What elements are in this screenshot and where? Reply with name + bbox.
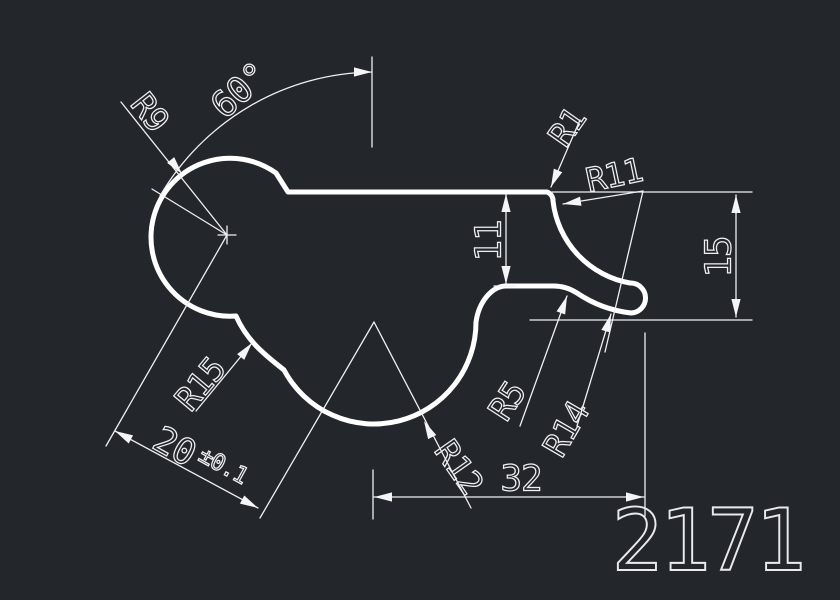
r5-arrowhead (557, 294, 572, 314)
r1-label: R1 (540, 100, 594, 153)
dim-20-arrowhead-right (240, 495, 260, 512)
dim-20-extension-left (106, 235, 227, 446)
dim-60-arrowhead (354, 67, 372, 76)
dim-15-arrowhead-bottom (731, 299, 740, 317)
dim-angle-60: 60° (152, 55, 372, 235)
dim-20-label: 20 (146, 419, 202, 475)
dim-20-extension-right (260, 322, 374, 518)
cad-drawing-canvas[interactable]: 60° R9 20 ±0.1 R15 R12 11 (0, 0, 840, 600)
dim-11-label: 11 (469, 220, 510, 261)
dim-32: 32 (373, 333, 645, 519)
r9-label: R9 (123, 85, 177, 139)
dim-11-arrowhead-top (501, 194, 510, 212)
dim-15: 15 (530, 192, 752, 320)
r1-arrowhead (547, 169, 563, 189)
dim-11: 11 (469, 194, 517, 286)
dim-32-arrowhead-left (374, 492, 392, 501)
dim-15-label: 15 (699, 236, 740, 277)
leader-r15: R15 (167, 340, 256, 418)
r11-arrowhead (562, 197, 581, 209)
leader-r14: R14 (535, 313, 615, 464)
cad-drawing-svg: 60° R9 20 ±0.1 R15 R12 11 (0, 0, 840, 600)
r15-label: R15 (167, 350, 233, 418)
dim-60-label: 60° (203, 55, 277, 127)
part-number: 2171 (611, 491, 802, 591)
r12-arrowhead (420, 419, 436, 439)
dim-60-centerline-extension (152, 189, 227, 235)
dim-32-label: 32 (500, 459, 541, 500)
r11-radial-line (605, 191, 643, 352)
dim-11-arrowhead-bottom (501, 266, 510, 284)
r14-label: R14 (535, 395, 597, 464)
dim-20-tolerance: ±0.1 (194, 442, 252, 490)
dim-15-arrowhead-top (731, 195, 740, 213)
dim-20: 20 ±0.1 (106, 235, 374, 518)
r5-label: R5 (480, 375, 533, 428)
